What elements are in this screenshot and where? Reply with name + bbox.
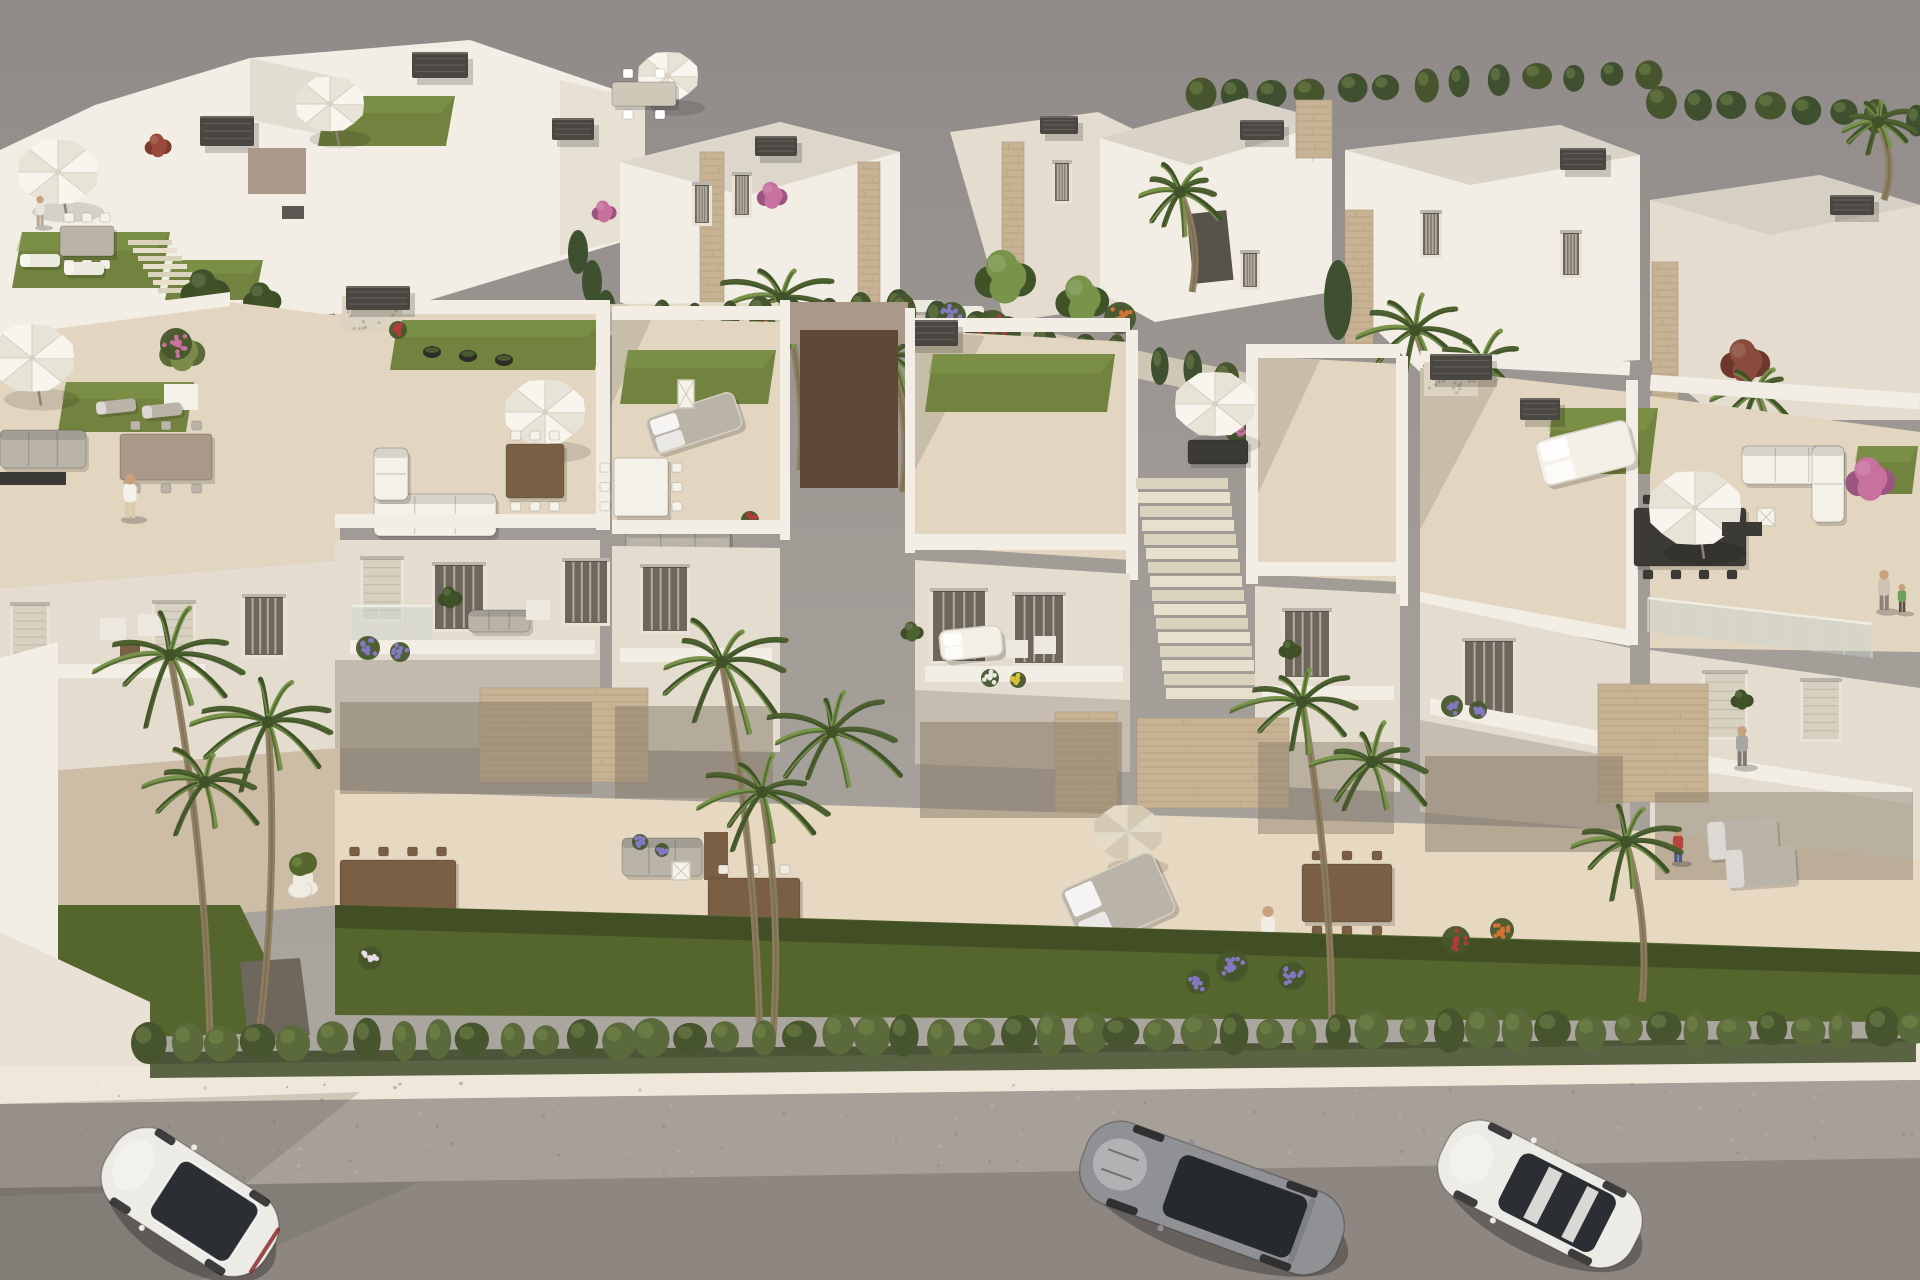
shape: [1324, 260, 1352, 340]
pergola-canopy: [755, 136, 802, 163]
pergola-canopy: [1240, 120, 1289, 147]
lawn-patch: [925, 354, 1115, 412]
flower-bed: [358, 946, 382, 970]
window: [1420, 210, 1442, 258]
flower-bed: [1278, 962, 1306, 990]
pergola-canopy: [200, 116, 259, 153]
scene-svg: [0, 0, 1920, 1280]
flower-bed: [1490, 918, 1514, 942]
terrace-recess: [340, 702, 592, 794]
outdoor-sofa: [1812, 446, 1847, 526]
pergola-canopy: [346, 286, 415, 317]
rear-parapet: [612, 306, 780, 320]
day-bed: [939, 625, 1007, 667]
party-wall: [905, 308, 915, 553]
pergola-canopy: [1430, 354, 1497, 387]
flower-bed: [1441, 695, 1463, 717]
window: [242, 594, 286, 658]
ac-unit: [282, 206, 304, 219]
flower-bed: [1186, 970, 1210, 994]
flower-bed: [1010, 672, 1026, 688]
window: [1240, 250, 1260, 290]
stair-bulkhead: [248, 148, 306, 194]
sun-lounger: [1725, 845, 1800, 891]
planter-pot: [459, 350, 477, 362]
window: [1462, 638, 1516, 716]
console-table: [0, 472, 66, 485]
sun-lounger: [64, 262, 106, 278]
stone-clad-panel: [858, 162, 880, 302]
armchair: [100, 618, 126, 640]
planter-pot: [423, 346, 441, 358]
window: [562, 558, 610, 626]
flower-bed: [632, 834, 648, 850]
dining-set: [1188, 440, 1251, 468]
pergola-canopy: [1520, 398, 1565, 427]
armchair: [1006, 640, 1028, 658]
window: [1800, 678, 1842, 742]
pergola-canopy: [412, 52, 473, 85]
rear-parapet: [1255, 344, 1400, 358]
window: [1560, 230, 1582, 278]
stone-clad-panel: [700, 152, 724, 302]
outdoor-sofa: [468, 610, 533, 636]
party-wall: [596, 300, 610, 530]
stone-clad-panel: [1296, 100, 1332, 163]
window: [692, 182, 712, 226]
flower-bed: [1469, 701, 1487, 719]
main-townhouse-row: [294, 286, 1920, 958]
front-parapet: [1255, 562, 1400, 576]
flower-bed: [356, 636, 380, 660]
flower-bed: [160, 328, 192, 360]
lantern-table: [672, 862, 690, 880]
balcony-parapet: [350, 640, 595, 654]
stair-shaft-interior: [800, 330, 898, 488]
outdoor-sofa: [0, 430, 89, 472]
flower-bed: [1216, 950, 1248, 982]
coffee-table: [1722, 522, 1762, 536]
window: [640, 564, 690, 634]
architectural-render-viewport: [0, 0, 1920, 1280]
terrace-recess: [920, 722, 1122, 818]
flower-bed: [389, 321, 407, 339]
armchair: [1034, 636, 1056, 654]
outdoor-sofa: [374, 448, 411, 504]
flower-bed: [1442, 926, 1470, 954]
glass-railing: [352, 606, 432, 640]
front-parapet: [612, 520, 780, 534]
window: [1052, 160, 1072, 204]
pergola-canopy: [1560, 148, 1611, 177]
planter-pot: [495, 354, 513, 366]
lantern-table: [678, 380, 694, 408]
pergola-canopy: [1040, 116, 1083, 141]
flower-bed: [981, 669, 999, 687]
dining-set: [1302, 851, 1395, 935]
window: [732, 172, 752, 218]
front-parapet: [915, 534, 1130, 550]
dining-set: [60, 213, 117, 269]
lawn-patch: [620, 350, 776, 404]
sun-lounger: [20, 254, 62, 270]
flower-bed: [390, 642, 410, 662]
pergola-canopy: [552, 118, 599, 147]
pergola-canopy: [1830, 195, 1879, 222]
party-wall: [780, 300, 790, 540]
armchair: [526, 600, 550, 620]
front-parapet: [335, 514, 600, 528]
